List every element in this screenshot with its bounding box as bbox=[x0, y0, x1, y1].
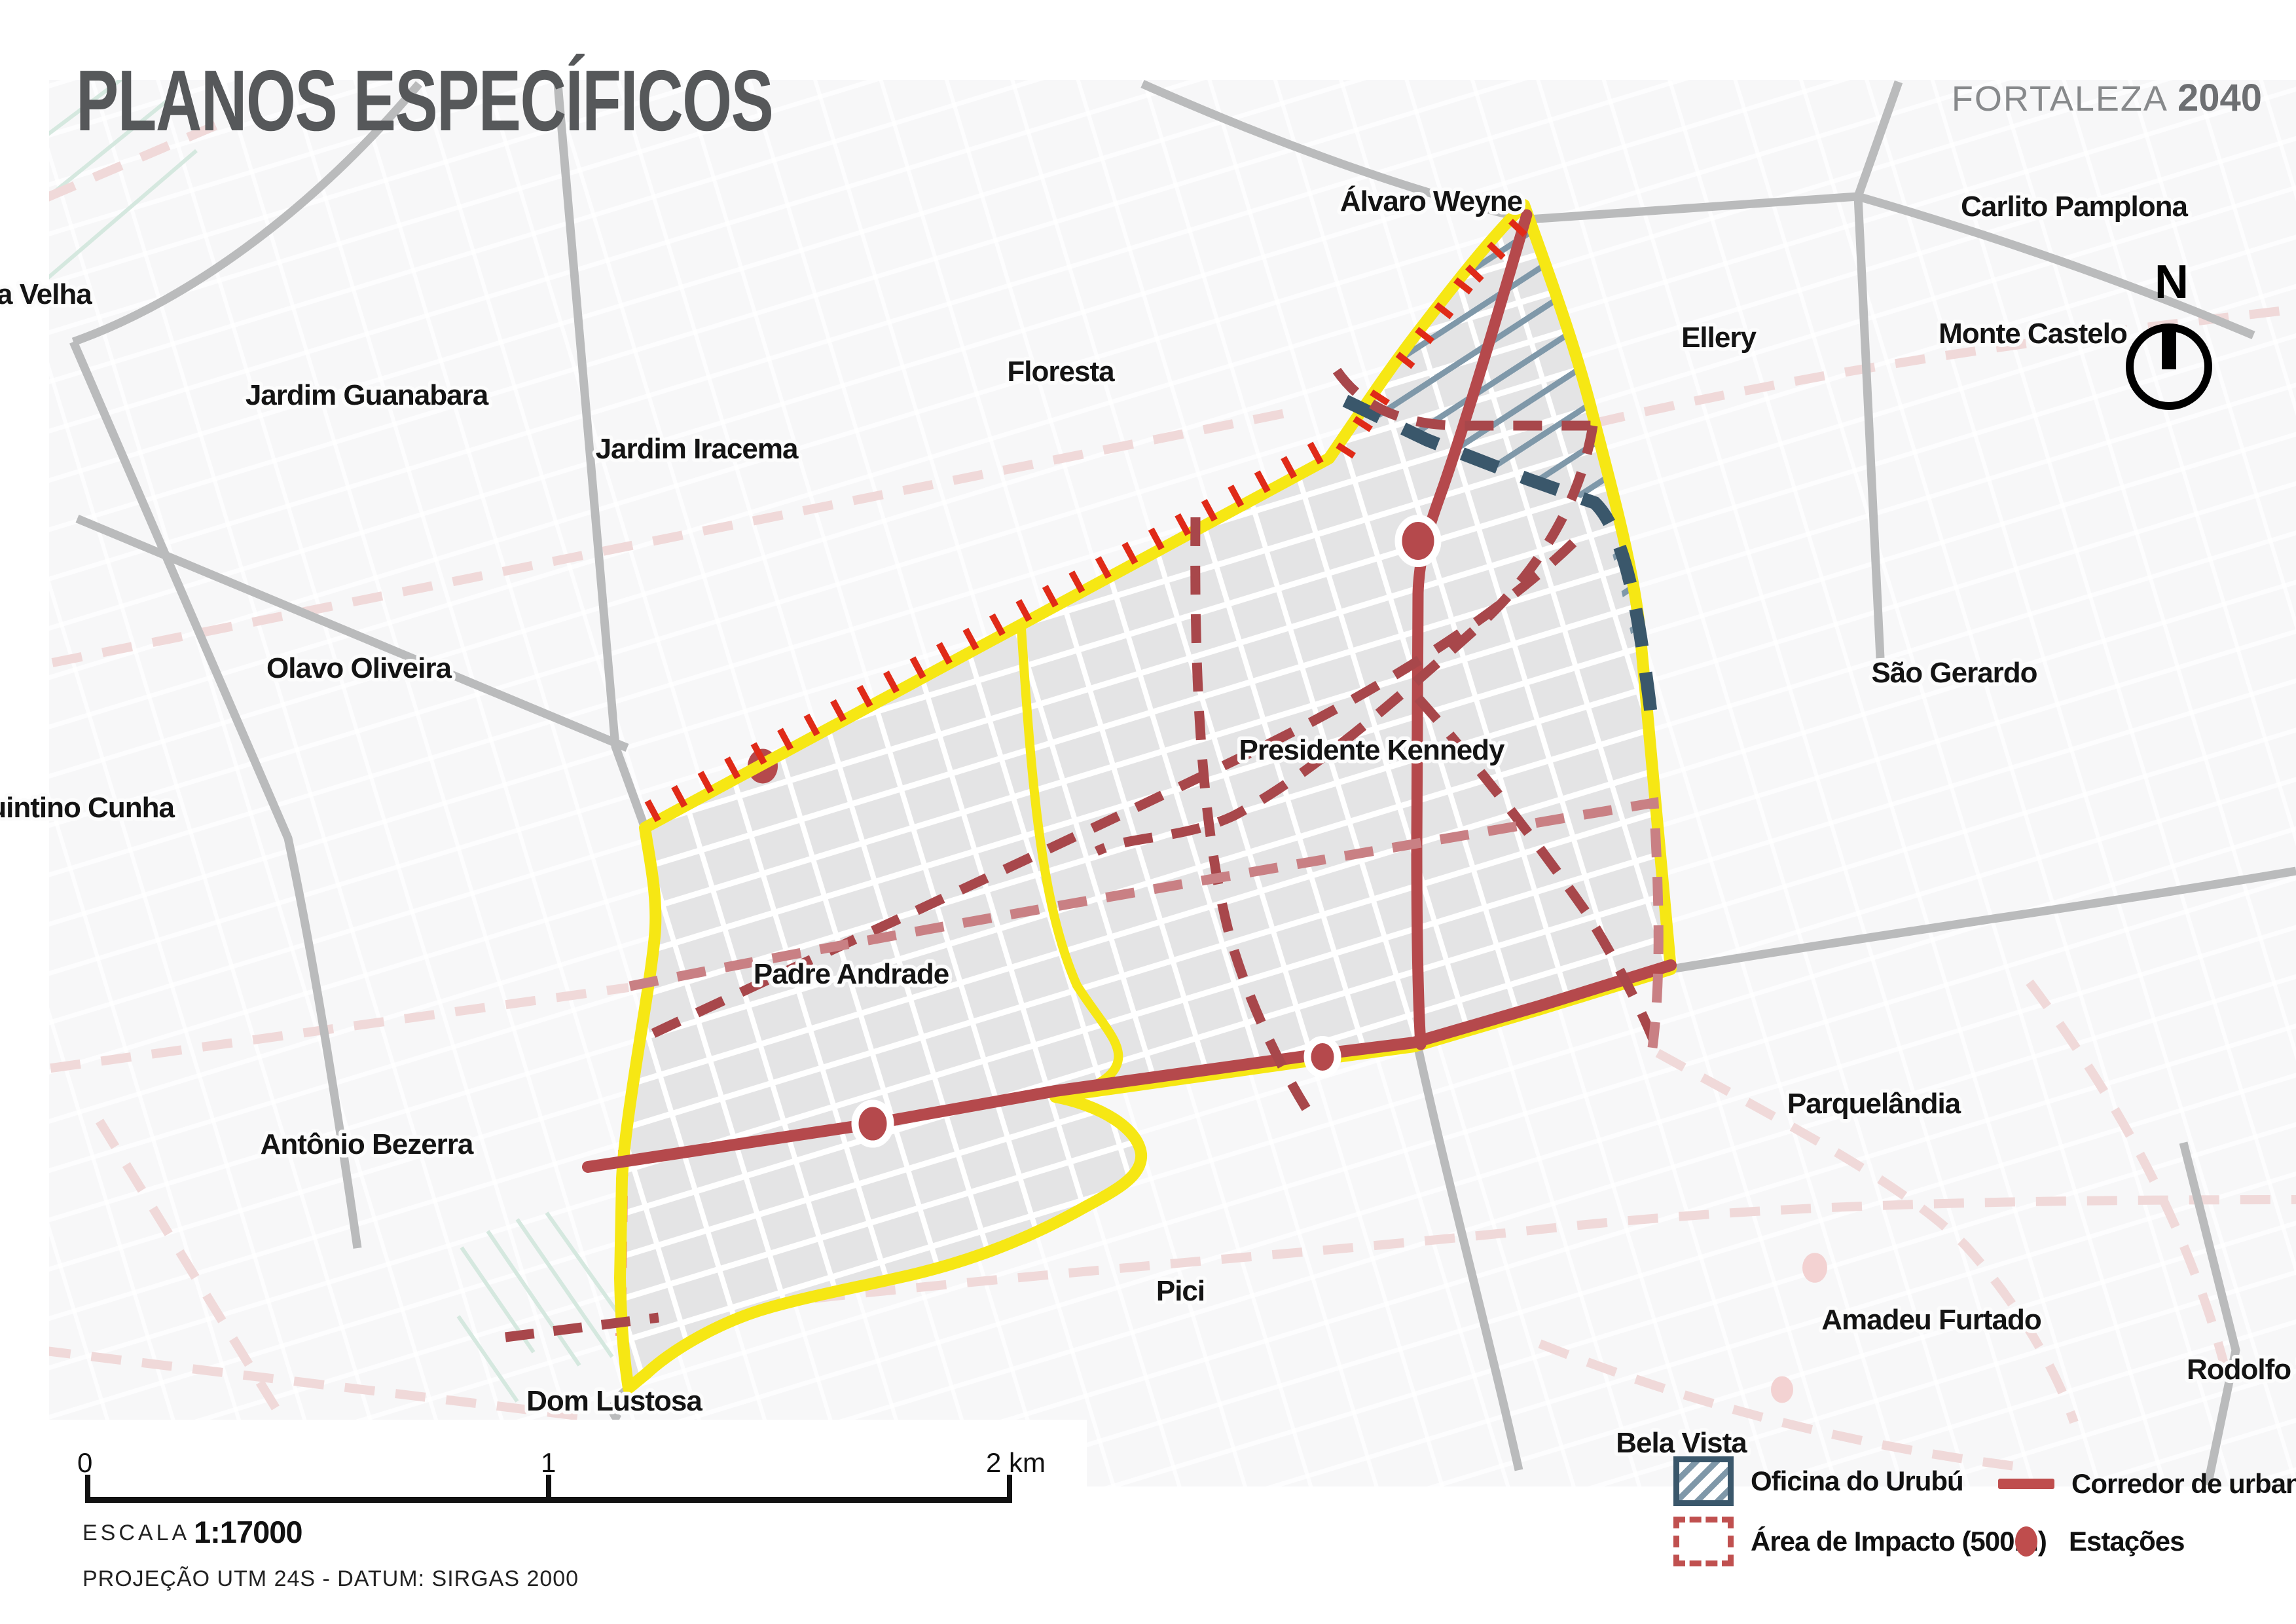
map-label-parquelandia: Parquelândia bbox=[1787, 1088, 1961, 1120]
north-label: N bbox=[2155, 256, 2189, 308]
scale-number-2km: 2 km bbox=[986, 1447, 1046, 1479]
scale-number-0: 0 bbox=[77, 1447, 92, 1479]
map-label-ellery: Ellery bbox=[1681, 322, 1757, 354]
oficina-swatch-icon bbox=[1673, 1456, 1734, 1506]
scale-tick-2 bbox=[1007, 1475, 1012, 1503]
map-label-quintino-cunha: Quintino Cunha bbox=[0, 792, 175, 824]
brand-regular: FORTALEZA bbox=[1952, 79, 2166, 119]
map-label-padre-andrade: Padre Andrade bbox=[754, 958, 949, 990]
legend-item-oficina: Oficina do Urubú bbox=[1673, 1456, 1963, 1506]
map-label-alvaro-weyne: Álvaro Weyne bbox=[1340, 185, 1522, 217]
map-label-carlito-pamplona: Carlito Pamplona bbox=[1961, 191, 2188, 223]
legend-item-impacto: Área de Impacto (500m) bbox=[1673, 1517, 2047, 1566]
map-label-sao-gerardo: São Gerardo bbox=[1871, 657, 2037, 689]
legend-label: Área de Impacto (500m) bbox=[1751, 1526, 2047, 1557]
legend-item-estacoes: Estações bbox=[2015, 1526, 2184, 1557]
legend-label: Corredor de urbanização bbox=[2071, 1468, 2296, 1500]
map-label-vila-velha: Vila Velha bbox=[0, 278, 92, 310]
brand-bold: 2040 bbox=[2178, 77, 2262, 119]
map-label-rodolfo-teofilo: Rodolfo Teófilo bbox=[2187, 1354, 2296, 1386]
legend-item-corredor: Corredor de urbanização bbox=[1998, 1468, 2296, 1500]
corredor-swatch-icon bbox=[1998, 1479, 2054, 1489]
map-label-antonio-bezerra: Antônio Bezerra bbox=[261, 1128, 474, 1160]
escala-value: 1:17000 bbox=[194, 1514, 302, 1550]
map-label-bela-vista: Bela Vista bbox=[1616, 1427, 1747, 1459]
map-label-floresta: Floresta bbox=[1007, 356, 1115, 388]
estacao-swatch-icon bbox=[2015, 1526, 2037, 1557]
map-label-olavo-oliveira: Olavo Oliveira bbox=[266, 652, 452, 684]
legend-label: Oficina do Urubú bbox=[1751, 1466, 1963, 1497]
map-canvas: Vila VelhaJardim GuanabaraJardim Iracema… bbox=[0, 0, 2296, 1624]
scale-tick-0 bbox=[85, 1475, 90, 1503]
escala-label: ESCALA bbox=[82, 1521, 190, 1546]
impacto-swatch-icon bbox=[1673, 1517, 1734, 1566]
map-label-monte-castelo: Monte Castelo bbox=[1939, 318, 2127, 350]
legend-label: Estações bbox=[2069, 1526, 2184, 1557]
scale-number-1: 1 bbox=[541, 1447, 556, 1479]
map-label-presidente-kennedy: Presidente Kennedy bbox=[1239, 734, 1505, 766]
map-label-jardim-iracema: Jardim Iracema bbox=[596, 433, 799, 465]
map-label-dom-lustosa: Dom Lustosa bbox=[526, 1385, 702, 1417]
brand-logo: FORTALEZA 2040 bbox=[1952, 76, 2262, 120]
map-label-jardim-guanabara: Jardim Guanabara bbox=[246, 379, 489, 411]
scale-tick-1 bbox=[546, 1475, 551, 1503]
map-label-pici: Pici bbox=[1156, 1275, 1205, 1307]
page-title: PLANOS ESPECÍFICOS bbox=[76, 51, 773, 150]
projection-note: PROJEÇÃO UTM 24S - DATUM: SIRGAS 2000 bbox=[82, 1566, 579, 1592]
map-label-amadeu-furtado: Amadeu Furtado bbox=[1821, 1304, 2041, 1336]
